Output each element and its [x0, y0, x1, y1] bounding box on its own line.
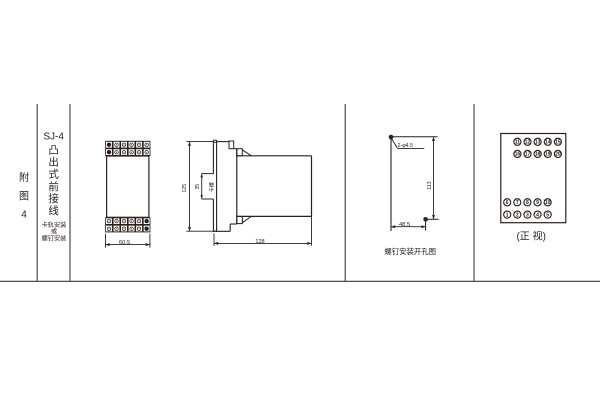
- svg-text:16: 16: [515, 152, 521, 158]
- svg-text:14: 14: [545, 140, 551, 146]
- svg-text:图: 图: [19, 191, 29, 203]
- svg-text:螺钉安装开孔图: 螺钉安装开孔图: [384, 247, 436, 256]
- svg-text:6: 6: [506, 200, 509, 206]
- svg-text:前: 前: [48, 180, 59, 193]
- svg-text:3: 3: [526, 212, 529, 218]
- svg-text:125: 125: [182, 184, 188, 193]
- svg-text:60.5: 60.5: [119, 240, 130, 246]
- svg-text:线: 线: [48, 204, 59, 217]
- svg-text:卡槽: 卡槽: [209, 182, 216, 192]
- svg-text:128: 128: [255, 239, 264, 245]
- svg-text:(正 视): (正 视): [516, 230, 545, 243]
- svg-text:8: 8: [526, 200, 529, 206]
- svg-text:附: 附: [19, 171, 29, 184]
- svg-text:4: 4: [536, 212, 539, 218]
- svg-text:2-φ4.5: 2-φ4.5: [398, 143, 414, 149]
- svg-text:出: 出: [48, 155, 59, 168]
- svg-text:20: 20: [555, 152, 561, 158]
- svg-text:接: 接: [48, 192, 59, 205]
- svg-text:12: 12: [525, 140, 531, 146]
- svg-text:5: 5: [546, 212, 549, 218]
- svg-text:式: 式: [48, 168, 59, 181]
- svg-text:19: 19: [545, 152, 551, 158]
- svg-text:48.5: 48.5: [399, 222, 410, 228]
- svg-text:13: 13: [535, 140, 541, 146]
- svg-text:凸: 凸: [48, 144, 59, 156]
- svg-text:113: 113: [427, 181, 433, 189]
- svg-text:4: 4: [21, 210, 27, 221]
- svg-text:2: 2: [516, 212, 519, 218]
- svg-text:7: 7: [516, 200, 519, 206]
- svg-text:17: 17: [525, 152, 531, 158]
- svg-text:SJ-4: SJ-4: [43, 131, 64, 142]
- svg-text:9: 9: [536, 200, 539, 206]
- svg-text:或: 或: [51, 228, 57, 236]
- svg-text:1: 1: [506, 212, 509, 218]
- svg-text:15: 15: [555, 140, 561, 146]
- svg-text:18: 18: [535, 152, 541, 158]
- svg-text:11: 11: [515, 140, 521, 146]
- svg-text:10: 10: [545, 200, 551, 206]
- svg-text:螺钉安装: 螺钉安装: [42, 235, 67, 243]
- svg-text:35: 35: [195, 184, 201, 190]
